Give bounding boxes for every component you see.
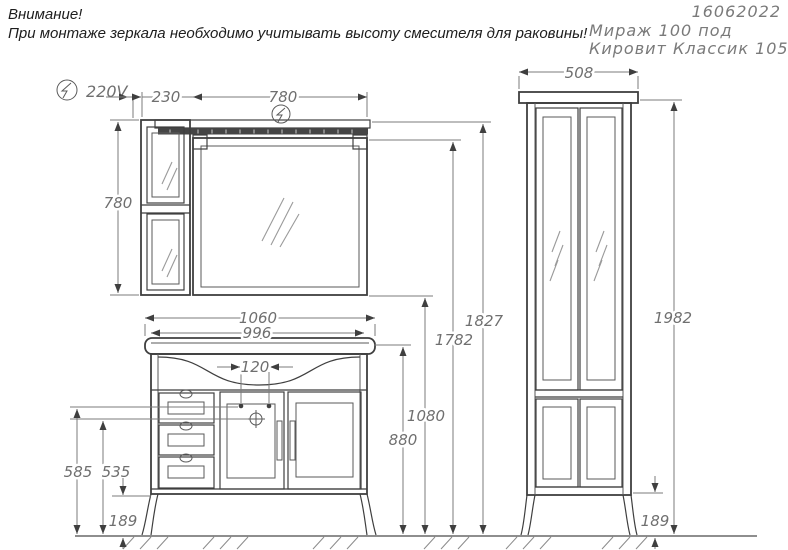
tall-cabinet — [519, 92, 638, 535]
center-door-handle — [277, 421, 282, 460]
floor-hatching — [123, 537, 647, 549]
dim-mirror-width: 780 — [269, 88, 298, 106]
doc-number: 16062022 — [692, 2, 781, 21]
dim-basin-top-height: 880 — [389, 431, 418, 449]
warning-note: Внимание! При монтаже зеркала необходимо… — [8, 6, 588, 42]
dim-siphon-height: 535 — [102, 463, 131, 481]
dim-faucet-spacing: 120 — [241, 358, 270, 376]
dim-mirror-top-height: 1782 — [435, 331, 473, 349]
power-label: 220V — [57, 80, 133, 118]
title-block: 16062022 Мираж 100 под Кировит Классик 1… — [589, 2, 788, 58]
right-door-handle — [290, 421, 295, 460]
warning-text: При монтаже зеркала необходимо учитывать… — [8, 25, 588, 42]
mount-point-left — [239, 404, 244, 409]
side-cabinet — [141, 120, 190, 295]
vanity-legs — [142, 494, 376, 535]
right-door — [288, 392, 361, 489]
technical-drawing-sheet: Внимание! При монтаже зеркала необходимо… — [0, 0, 788, 550]
dim-side-cabinet-width: 230 — [152, 88, 181, 106]
dim-mirror-height: 780 — [104, 194, 133, 212]
dim-column-width: 508 — [565, 64, 594, 82]
mirror — [193, 135, 367, 295]
dim-body-width: 996 — [243, 324, 272, 342]
lightning-icon — [57, 80, 77, 100]
model-name-line1: Мираж 100 под — [589, 21, 733, 40]
tall-lower-doors — [536, 399, 622, 487]
tall-cabinet-cornice — [519, 92, 638, 103]
dim-leg-height-left: 189 — [109, 512, 138, 530]
dim-drawer-line-height: 585 — [64, 463, 93, 481]
tall-cabinet-legs — [521, 495, 637, 535]
dim-mirror-bottom-height: 1080 — [407, 407, 445, 425]
tall-upper-doors — [536, 108, 622, 390]
siphon-center-mark — [247, 410, 265, 428]
mirror-cabinet — [141, 105, 370, 295]
mount-point-right — [267, 404, 272, 409]
dim-column-height: 1982 — [654, 309, 692, 327]
drawer-stack — [159, 390, 214, 488]
vanity-doors — [220, 392, 361, 489]
drawing-canvas: Внимание! При монтаже зеркала необходимо… — [0, 0, 788, 550]
model-name-line2: Кировит Классик 105 — [589, 39, 788, 58]
dim-leg-height-right: 189 — [641, 512, 670, 530]
voltage-label: 220V — [86, 82, 129, 101]
dim-total-height: 1827 — [465, 312, 504, 330]
warning-title: Внимание! — [8, 6, 83, 23]
